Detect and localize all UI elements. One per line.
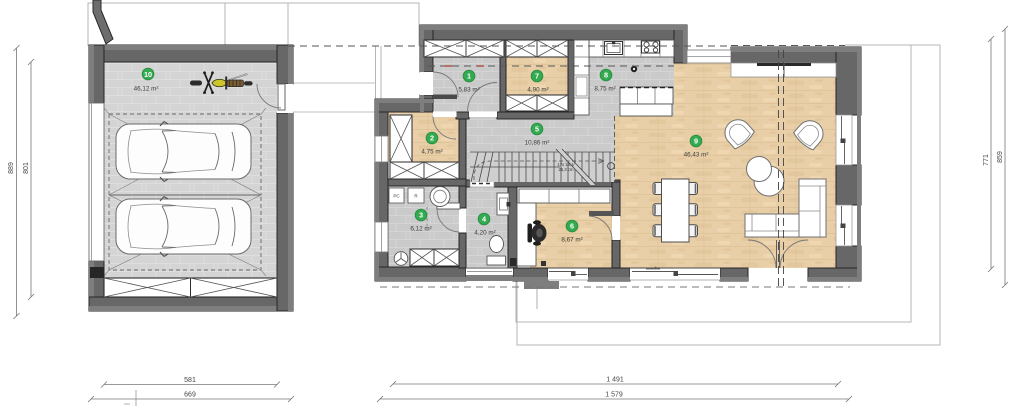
svg-text:801: 801 — [23, 162, 30, 174]
svg-text:46,43 m²: 46,43 m² — [684, 152, 709, 159]
svg-text:6: 6 — [570, 222, 574, 231]
svg-text:859: 859 — [997, 151, 1004, 163]
svg-text:PC: PC — [393, 194, 400, 199]
svg-text:3: 3 — [419, 211, 423, 220]
svg-text:5,83 m²: 5,83 m² — [458, 87, 479, 94]
svg-text:6,12 m²: 6,12 m² — [410, 226, 431, 233]
svg-text:1 579: 1 579 — [605, 392, 623, 399]
svg-text:889: 889 — [8, 162, 15, 174]
svg-text:1 491: 1 491 — [606, 377, 624, 384]
svg-text:10: 10 — [144, 70, 152, 79]
svg-text:2: 2 — [430, 134, 434, 143]
svg-text:1: 1 — [467, 72, 471, 81]
svg-text:46,12 m²: 46,12 m² — [134, 86, 159, 93]
svg-text:8,75 m²: 8,75 m² — [594, 86, 615, 93]
svg-text:4,90 m²: 4,90 m² — [527, 87, 548, 94]
svg-text:771: 771 — [983, 154, 990, 166]
svg-text:581: 581 — [184, 377, 196, 384]
svg-text:25,3 cm: 25,3 cm — [559, 167, 574, 172]
svg-text:8,67 m²: 8,67 m² — [561, 237, 582, 244]
svg-text:5: 5 — [535, 125, 539, 134]
svg-text:669: 669 — [184, 392, 196, 399]
svg-text:4,20 m²: 4,20 m² — [474, 230, 495, 237]
svg-text:8: 8 — [604, 71, 608, 80]
svg-text:9: 9 — [694, 137, 698, 146]
svg-text:10,86 m²: 10,86 m² — [525, 140, 550, 147]
svg-text:4,75 m²: 4,75 m² — [421, 149, 442, 156]
svg-text:7: 7 — [535, 72, 539, 81]
